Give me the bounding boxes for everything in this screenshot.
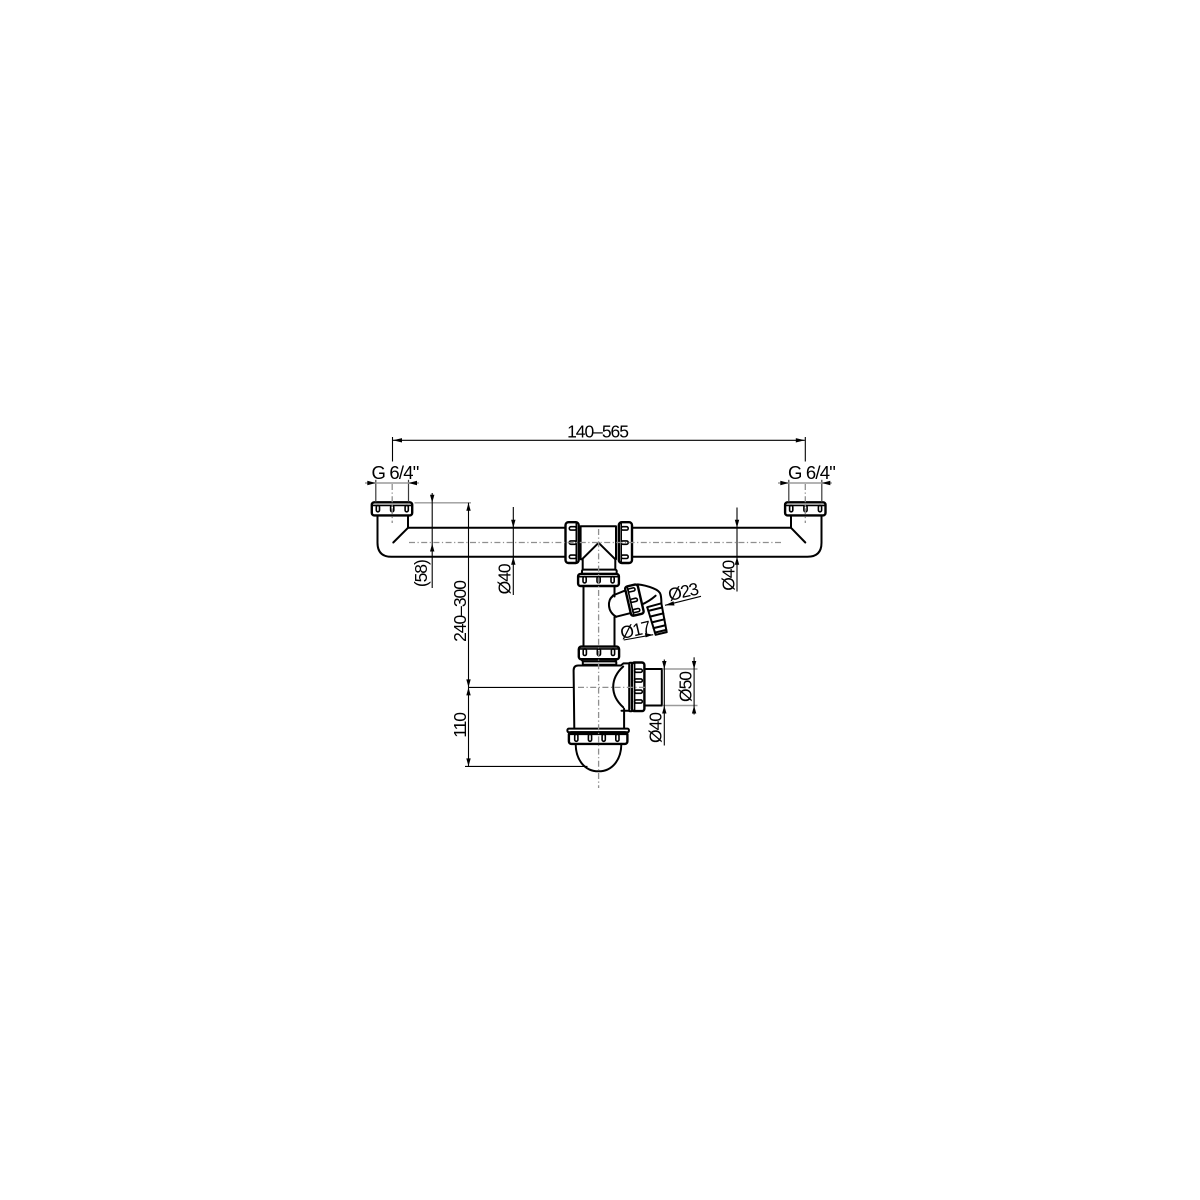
svg-text:110: 110 [450, 712, 470, 738]
svg-text:(58): (58) [411, 560, 431, 587]
svg-text:Ø50: Ø50 [675, 671, 695, 702]
svg-text:Ø40: Ø40 [495, 563, 515, 594]
svg-text:G 6/4": G 6/4" [371, 462, 418, 483]
svg-text:Ø40: Ø40 [646, 712, 666, 743]
svg-text:140–565: 140–565 [567, 422, 628, 442]
svg-text:G 6/4": G 6/4" [788, 462, 835, 483]
svg-text:240–300: 240–300 [450, 580, 470, 642]
svg-text:Ø40: Ø40 [718, 560, 738, 591]
